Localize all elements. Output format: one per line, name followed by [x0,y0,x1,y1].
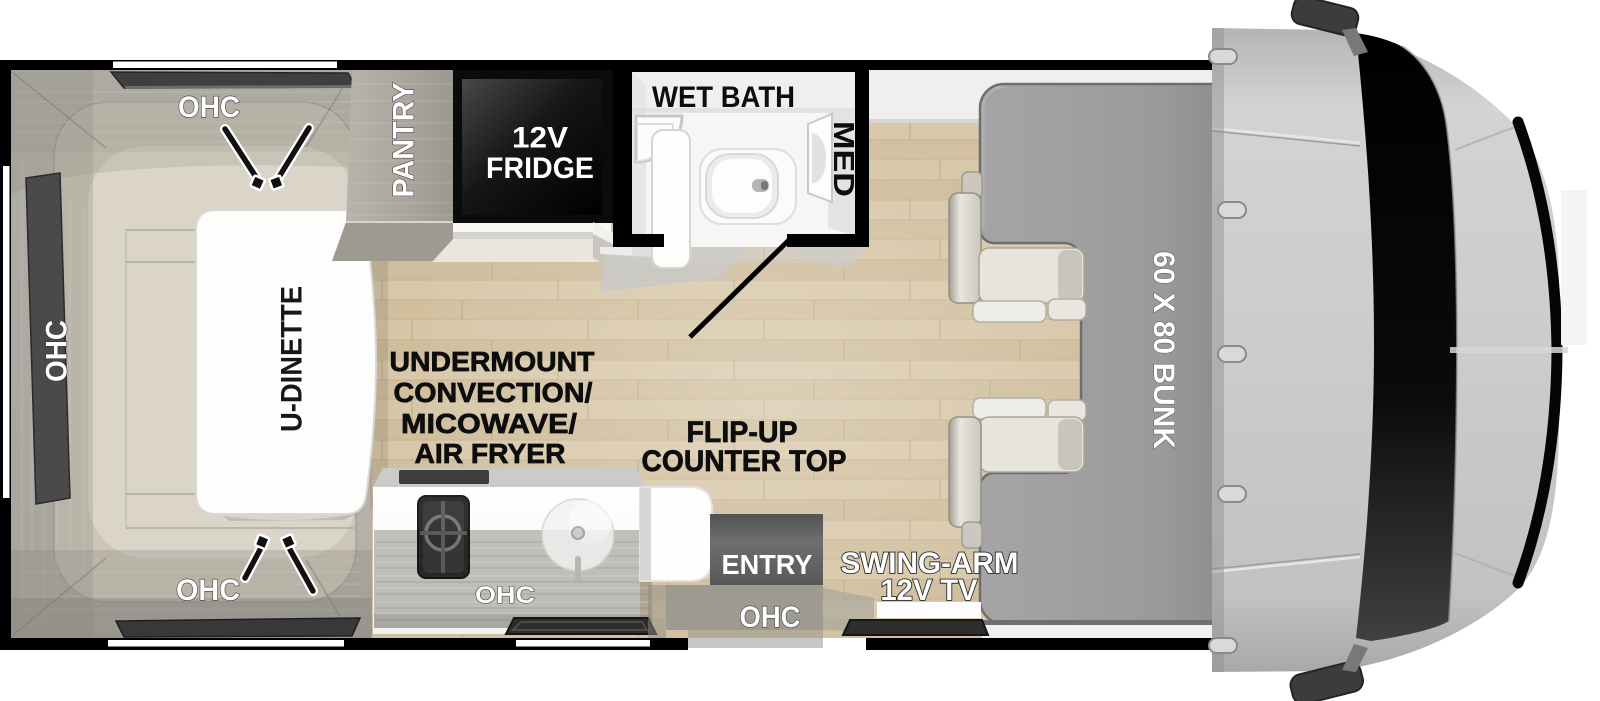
svg-text:FRIDGE: FRIDGE [486,152,594,185]
svg-text:MED: MED [827,121,859,197]
svg-text:CONVECTION/: CONVECTION/ [394,377,593,408]
svg-text:OHC: OHC [176,574,240,607]
svg-text:60 X 80 BUNK: 60 X 80 BUNK [1147,251,1180,449]
svg-text:OHC: OHC [740,601,801,634]
svg-text:12V: 12V [512,122,568,155]
svg-text:U-DINETTE: U-DINETTE [276,286,309,432]
svg-text:UNDERMOUNT: UNDERMOUNT [390,346,595,377]
svg-text:AIR FRYER: AIR FRYER [415,438,566,469]
svg-text:12V TV: 12V TV [881,574,978,607]
svg-text:OHC: OHC [41,320,74,382]
svg-text:MICOWAVE/: MICOWAVE/ [401,408,577,439]
svg-text:COUNTER TOP: COUNTER TOP [642,445,847,478]
svg-text:OHC: OHC [475,582,535,609]
svg-text:ENTRY: ENTRY [722,549,813,580]
svg-text:OHC: OHC [178,91,240,124]
svg-text:PANTRY: PANTRY [388,83,421,198]
